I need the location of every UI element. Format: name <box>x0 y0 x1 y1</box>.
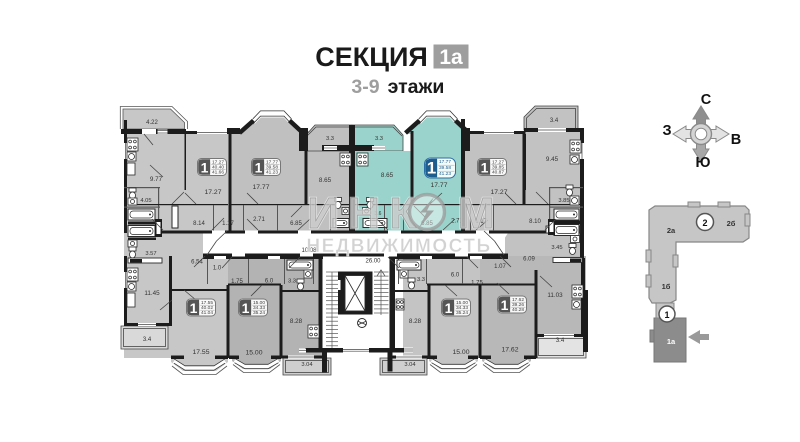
svg-text:6.0: 6.0 <box>451 273 460 279</box>
svg-text:1: 1 <box>664 310 669 320</box>
svg-text:2: 2 <box>702 218 707 228</box>
svg-text:8.14: 8.14 <box>193 221 205 227</box>
svg-text:В: В <box>731 132 741 148</box>
svg-text:17.27: 17.27 <box>204 189 221 196</box>
svg-text:1: 1 <box>190 300 198 316</box>
svg-text:3.85: 3.85 <box>558 198 569 204</box>
svg-text:6.54: 6.54 <box>191 260 203 266</box>
svg-text:2.71: 2.71 <box>253 217 265 223</box>
svg-text:СЕКЦИЯ: СЕКЦИЯ <box>315 42 428 72</box>
svg-text:9.77: 9.77 <box>150 176 163 183</box>
svg-text:9.45: 9.45 <box>546 156 559 163</box>
svg-text:6.85: 6.85 <box>290 221 302 227</box>
svg-text:1.75: 1.75 <box>231 279 243 285</box>
svg-text:1а: 1а <box>667 337 676 346</box>
svg-text:17.55: 17.55 <box>192 349 209 356</box>
svg-text:39.58: 39.58 <box>439 165 451 171</box>
svg-text:8.65: 8.65 <box>319 177 332 184</box>
svg-text:3.3: 3.3 <box>417 277 425 283</box>
svg-text:15.00: 15.00 <box>245 350 262 357</box>
svg-text:26.00: 26.00 <box>365 259 381 265</box>
svg-text:4.22: 4.22 <box>146 120 158 126</box>
svg-text:6.0: 6.0 <box>265 279 274 285</box>
svg-text:1б: 1б <box>662 282 671 291</box>
svg-text:1: 1 <box>255 160 263 176</box>
svg-text:3.3: 3.3 <box>375 136 383 142</box>
svg-text:17.77: 17.77 <box>430 182 447 189</box>
svg-text:1: 1 <box>481 160 489 176</box>
svg-text:1.07: 1.07 <box>494 264 506 270</box>
svg-text:3.04: 3.04 <box>301 362 313 368</box>
svg-text:3.4: 3.4 <box>143 337 152 343</box>
svg-text:8.65: 8.65 <box>381 172 394 179</box>
svg-text:1: 1 <box>242 300 250 316</box>
svg-text:17.77: 17.77 <box>439 159 451 165</box>
svg-text:М: М <box>458 189 495 238</box>
svg-text:1.75: 1.75 <box>471 281 483 287</box>
svg-text:1: 1 <box>501 297 509 313</box>
svg-text:3-9: 3-9 <box>351 76 379 98</box>
svg-text:40.87: 40.87 <box>492 169 504 175</box>
svg-text:этажи: этажи <box>388 76 445 98</box>
svg-text:2б: 2б <box>727 219 736 228</box>
svg-text:1.0: 1.0 <box>213 266 222 272</box>
svg-text:3.4: 3.4 <box>556 338 565 344</box>
svg-text:41.66: 41.66 <box>212 169 224 175</box>
svg-text:11.03: 11.03 <box>547 292 563 299</box>
svg-text:15.00: 15.00 <box>452 349 469 356</box>
svg-text:3.3: 3.3 <box>326 136 334 142</box>
svg-text:1.17: 1.17 <box>222 221 234 227</box>
svg-text:8.28: 8.28 <box>290 318 303 325</box>
svg-text:3.3: 3.3 <box>288 279 296 285</box>
svg-text:35.24: 35.24 <box>253 310 265 316</box>
svg-text:41.23: 41.23 <box>439 171 451 177</box>
svg-text:3.04: 3.04 <box>404 362 416 368</box>
svg-text:40.28: 40.28 <box>512 307 524 313</box>
svg-text:З: З <box>662 123 671 139</box>
svg-text:41.04: 41.04 <box>201 310 213 316</box>
svg-text:1а: 1а <box>439 46 463 69</box>
svg-text:1: 1 <box>427 159 436 178</box>
svg-text:3.45: 3.45 <box>551 245 562 251</box>
svg-text:35.24: 35.24 <box>456 310 468 316</box>
svg-text:1: 1 <box>201 160 209 176</box>
svg-text:1: 1 <box>445 300 453 316</box>
svg-text:41.23: 41.23 <box>266 169 278 175</box>
svg-text:3.57: 3.57 <box>145 251 156 257</box>
svg-text:3.4: 3.4 <box>550 118 559 124</box>
svg-text:2а: 2а <box>667 226 676 235</box>
svg-text:11.45: 11.45 <box>144 290 160 297</box>
svg-text:6.09: 6.09 <box>523 257 535 263</box>
svg-text:8.10: 8.10 <box>529 219 541 225</box>
svg-text:НЕДВИЖИМОСТЬ: НЕДВИЖИМОСТЬ <box>306 236 491 257</box>
svg-text:17.62: 17.62 <box>501 347 518 354</box>
svg-text:17.77: 17.77 <box>252 184 269 191</box>
svg-text:4.05: 4.05 <box>140 198 151 204</box>
svg-text:Н: Н <box>348 189 380 238</box>
svg-text:С: С <box>701 92 712 108</box>
svg-text:8.28: 8.28 <box>409 318 422 325</box>
svg-text:Ю: Ю <box>696 155 711 171</box>
svg-text:И: И <box>307 189 339 238</box>
